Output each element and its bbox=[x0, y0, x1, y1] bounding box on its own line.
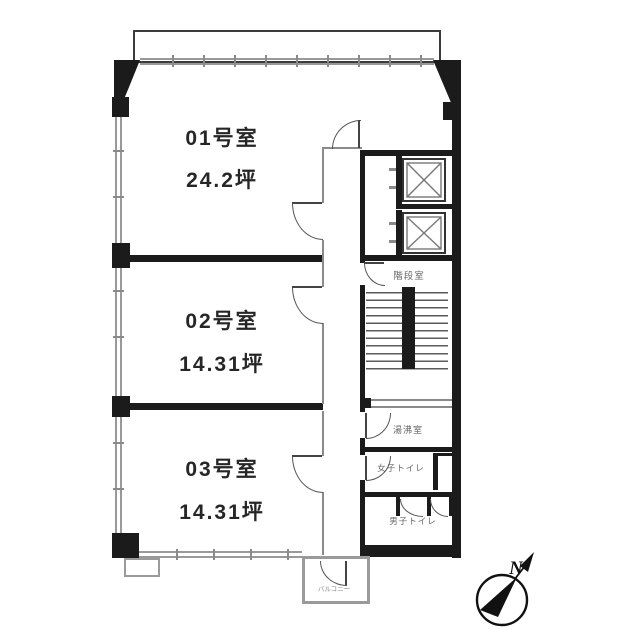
room-01-name: 01号室 bbox=[122, 122, 322, 152]
elevator-block-top-wall bbox=[360, 150, 452, 156]
room-01-area: 24.2坪 bbox=[122, 164, 322, 194]
elevator-block-mid-wall bbox=[396, 204, 452, 209]
floor-plan: 階段室 湯沸室 女子トイレ 男子トイレ バルコニー 01号室 24.2坪 0 bbox=[0, 0, 630, 630]
window-mullion bbox=[420, 55, 422, 67]
pillar-right-nub bbox=[443, 102, 452, 120]
door-arc-womens-toilet bbox=[366, 456, 391, 481]
window-mullion bbox=[203, 55, 205, 67]
womens-toilet-closet-wall bbox=[433, 454, 438, 490]
door-leaf bbox=[358, 120, 360, 148]
exterior-step bbox=[124, 558, 160, 577]
balcony-label: バルコニー bbox=[305, 583, 363, 593]
window-mullion bbox=[234, 55, 236, 67]
window-bottom-inner bbox=[139, 556, 302, 558]
elevator-2-x-icon bbox=[402, 212, 446, 254]
elevator-door-mark bbox=[389, 186, 396, 189]
window-mullion bbox=[296, 55, 298, 67]
window-mullion bbox=[327, 55, 329, 67]
stairwell-bottom-wall-inner bbox=[362, 406, 452, 408]
window-mullion bbox=[113, 442, 124, 444]
window-mullion bbox=[113, 196, 124, 198]
pillar-left-1 bbox=[112, 97, 129, 117]
room-03-name: 03号室 bbox=[122, 453, 322, 483]
corridor-left-wall bbox=[322, 411, 324, 456]
window-mullion bbox=[176, 549, 178, 560]
door-arc-stairwell bbox=[364, 263, 385, 286]
door-leaf bbox=[365, 413, 367, 438]
corridor-left-wall bbox=[322, 240, 324, 287]
elevator-1-x-icon bbox=[402, 158, 446, 202]
staircase-center-wall bbox=[402, 287, 415, 369]
room-02-name: 02号室 bbox=[122, 305, 322, 335]
mens-toilet-label: 男子トイレ bbox=[374, 515, 452, 527]
womens-toilet-bottom-wall bbox=[360, 492, 452, 497]
elevator-block-bottom-wall bbox=[360, 255, 452, 261]
compass-icon: N bbox=[468, 548, 564, 630]
corridor-left-wall bbox=[322, 492, 324, 555]
window-mullion bbox=[358, 55, 360, 67]
window-mullion bbox=[213, 549, 215, 560]
window-bottom bbox=[139, 551, 302, 553]
room-03-area: 14.31坪 bbox=[122, 496, 322, 526]
window-left bbox=[115, 100, 117, 535]
kitchenette-bottom-wall bbox=[360, 447, 452, 452]
corridor-right-wall bbox=[360, 285, 365, 412]
wall-bottom-right bbox=[360, 545, 461, 557]
door-leaf bbox=[292, 202, 322, 204]
wall-divider-room2-room3 bbox=[122, 403, 323, 410]
door-arc-corridor-entrance bbox=[332, 120, 361, 149]
elevator-door-mark bbox=[389, 240, 396, 243]
corridor-left-wall bbox=[322, 148, 324, 203]
window-mullion bbox=[265, 55, 267, 67]
door-leaf bbox=[292, 286, 322, 288]
window-mullion bbox=[250, 549, 252, 560]
corridor-right-wall bbox=[360, 480, 365, 545]
stairwell-bottom-wall bbox=[362, 399, 452, 401]
compass-north-label: N bbox=[508, 558, 524, 579]
elevator-door-mark bbox=[389, 222, 396, 225]
door-leaf bbox=[365, 456, 367, 480]
stairwell-bottom-pillar bbox=[362, 398, 371, 408]
door-leaf bbox=[345, 561, 347, 585]
womens-toilet-closet-wall-top bbox=[433, 453, 452, 456]
window-mullion bbox=[113, 336, 124, 338]
window-mullion bbox=[113, 290, 124, 292]
wall-divider-room1-room2 bbox=[122, 255, 323, 262]
window-mullion bbox=[172, 55, 174, 67]
door-arc-room-01 bbox=[292, 203, 323, 240]
pillar-bottom-left bbox=[112, 533, 139, 558]
toilet-stall-wall bbox=[449, 497, 453, 516]
room-02-area: 14.31坪 bbox=[122, 348, 322, 378]
elevator-door-mark bbox=[389, 168, 396, 171]
door-leaf bbox=[364, 262, 384, 264]
corridor-left-wall bbox=[322, 323, 324, 404]
window-mullion bbox=[287, 549, 289, 560]
window-mullion bbox=[113, 488, 124, 490]
window-mullion bbox=[389, 55, 391, 67]
wall-right bbox=[452, 60, 461, 558]
corridor-right-wall bbox=[360, 150, 365, 263]
